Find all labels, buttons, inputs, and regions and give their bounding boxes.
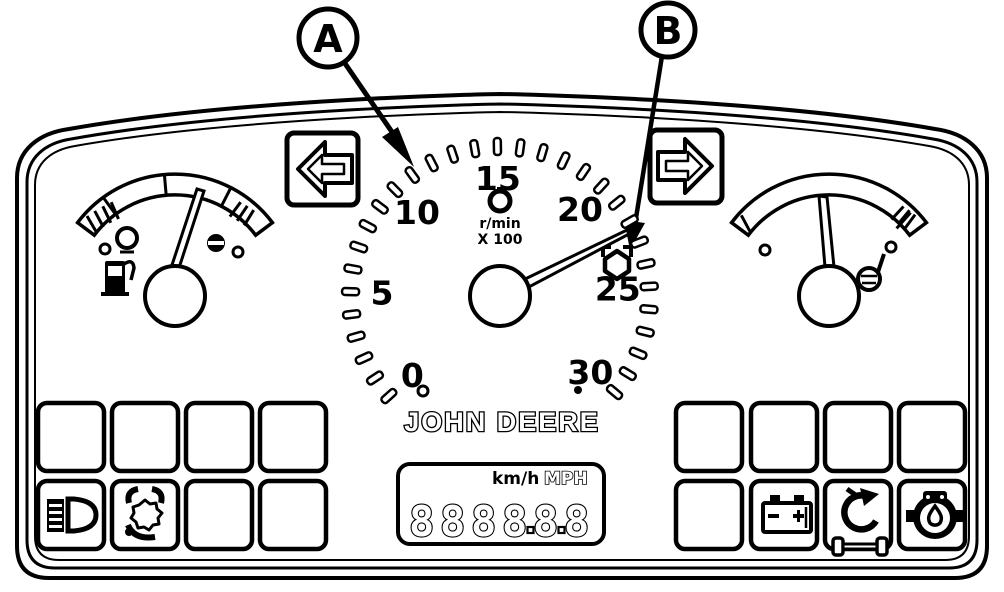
- tach-number: 30: [567, 353, 613, 392]
- tach-tick: [425, 154, 439, 172]
- tach-unit-line2: X 100: [478, 232, 523, 248]
- callout-a-label: A: [313, 17, 343, 61]
- tach-needle-hub: [470, 266, 530, 326]
- callout-b-label: B: [654, 9, 683, 53]
- lcd-display: km/h MPH 888888: [398, 464, 604, 546]
- indicator-cell: [38, 403, 104, 471]
- tach-tick: [537, 143, 549, 161]
- left-arrow-inner-icon: [308, 155, 344, 183]
- temp-needle: [819, 196, 834, 267]
- indicator-cell: [260, 481, 326, 549]
- tach-tick: [557, 152, 571, 170]
- indicator-cell: [825, 403, 891, 471]
- lcd-digit: 8: [471, 497, 496, 546]
- temp-needle-hub: [799, 266, 859, 326]
- temperature-gauge: [732, 174, 927, 326]
- fuel-empty-circle-icon: [117, 228, 137, 248]
- tach-tick: [355, 351, 373, 364]
- tach-tick: [629, 347, 647, 360]
- headlight-icon: [47, 499, 96, 532]
- instrument-panel-diagram: A B: [0, 0, 1004, 592]
- right-turn-indicator: [650, 130, 722, 203]
- tach-unit-line1: r/min: [479, 216, 520, 232]
- lcd-digit: 8: [440, 497, 465, 546]
- tach-tick: [516, 139, 525, 157]
- tach-tick: [636, 326, 654, 337]
- coolant-temp-icon: [858, 254, 884, 290]
- tach-number: 10: [394, 193, 440, 232]
- lcd-unit-imperial: MPH: [544, 469, 588, 489]
- callout-b: B: [624, 3, 695, 250]
- tachometer: 051015202530 r/min X 100: [342, 138, 658, 404]
- fuel-full-dot-icon: [233, 247, 243, 257]
- lcd-digit: 8: [533, 497, 558, 546]
- lcd-unit-metric: km/h: [492, 469, 539, 489]
- fuel-needle: [171, 189, 204, 271]
- tach-number: 5: [371, 274, 394, 313]
- indicator-cell: [260, 403, 326, 471]
- tach-tick: [447, 145, 459, 163]
- indicator-cell: [676, 481, 742, 549]
- tach-tick: [640, 305, 658, 313]
- tach-tick: [576, 163, 591, 181]
- right-arrow-inner-icon: [666, 152, 702, 180]
- fuel-low-dot-icon: [100, 244, 110, 254]
- lcd-digit: 8: [502, 497, 527, 546]
- tach-tick: [608, 195, 626, 211]
- tach-tick: [640, 282, 657, 290]
- tach-tick: [619, 366, 637, 381]
- lcd-digit-row: 888888: [409, 497, 589, 546]
- indicator-cell: [676, 403, 742, 471]
- brand-logo-text: JOHN DEERE: [404, 407, 600, 437]
- tach-tick: [371, 199, 389, 215]
- temp-cold-dot-icon: [760, 245, 770, 255]
- indicator-cell: [186, 403, 252, 471]
- tach-tick: [404, 166, 420, 184]
- tach-tick: [494, 138, 501, 155]
- fuel-pump-icon: [101, 261, 134, 296]
- pto-mark-icon: [603, 247, 631, 279]
- left-turn-indicator: [287, 133, 358, 205]
- lcd-digit: 8: [409, 497, 434, 546]
- tach-tick: [343, 310, 361, 319]
- lcd-decimal-point: [528, 527, 534, 533]
- fuel-needle-hub: [145, 266, 205, 326]
- tach-tick: [366, 370, 384, 385]
- tach-tick: [342, 288, 359, 295]
- lcd-digit: 8: [564, 497, 589, 546]
- panel-drawing: A B: [0, 0, 1004, 592]
- tach-tick: [344, 264, 362, 274]
- tach-tick: [359, 219, 377, 233]
- tach-tick: [637, 259, 655, 269]
- tach-tick: [350, 241, 368, 253]
- indicator-cell: [112, 403, 178, 471]
- fuel-gauge: [78, 174, 273, 326]
- fuel-full-icon: [207, 234, 225, 252]
- tach-max-dot-icon: [574, 386, 582, 394]
- indicator-cell: [751, 403, 817, 471]
- tach-number: 0: [401, 356, 424, 395]
- tach-tick: [347, 331, 365, 342]
- indicator-cell: [899, 403, 965, 471]
- callout-a-arrowhead-icon: [382, 127, 414, 167]
- tach-tick: [380, 388, 397, 405]
- indicator-cell: [186, 481, 252, 549]
- tach-number: 20: [557, 190, 603, 229]
- tach-tick: [470, 140, 480, 158]
- lcd-decimal-point: [559, 527, 565, 533]
- temp-hot-dot-icon: [886, 242, 896, 252]
